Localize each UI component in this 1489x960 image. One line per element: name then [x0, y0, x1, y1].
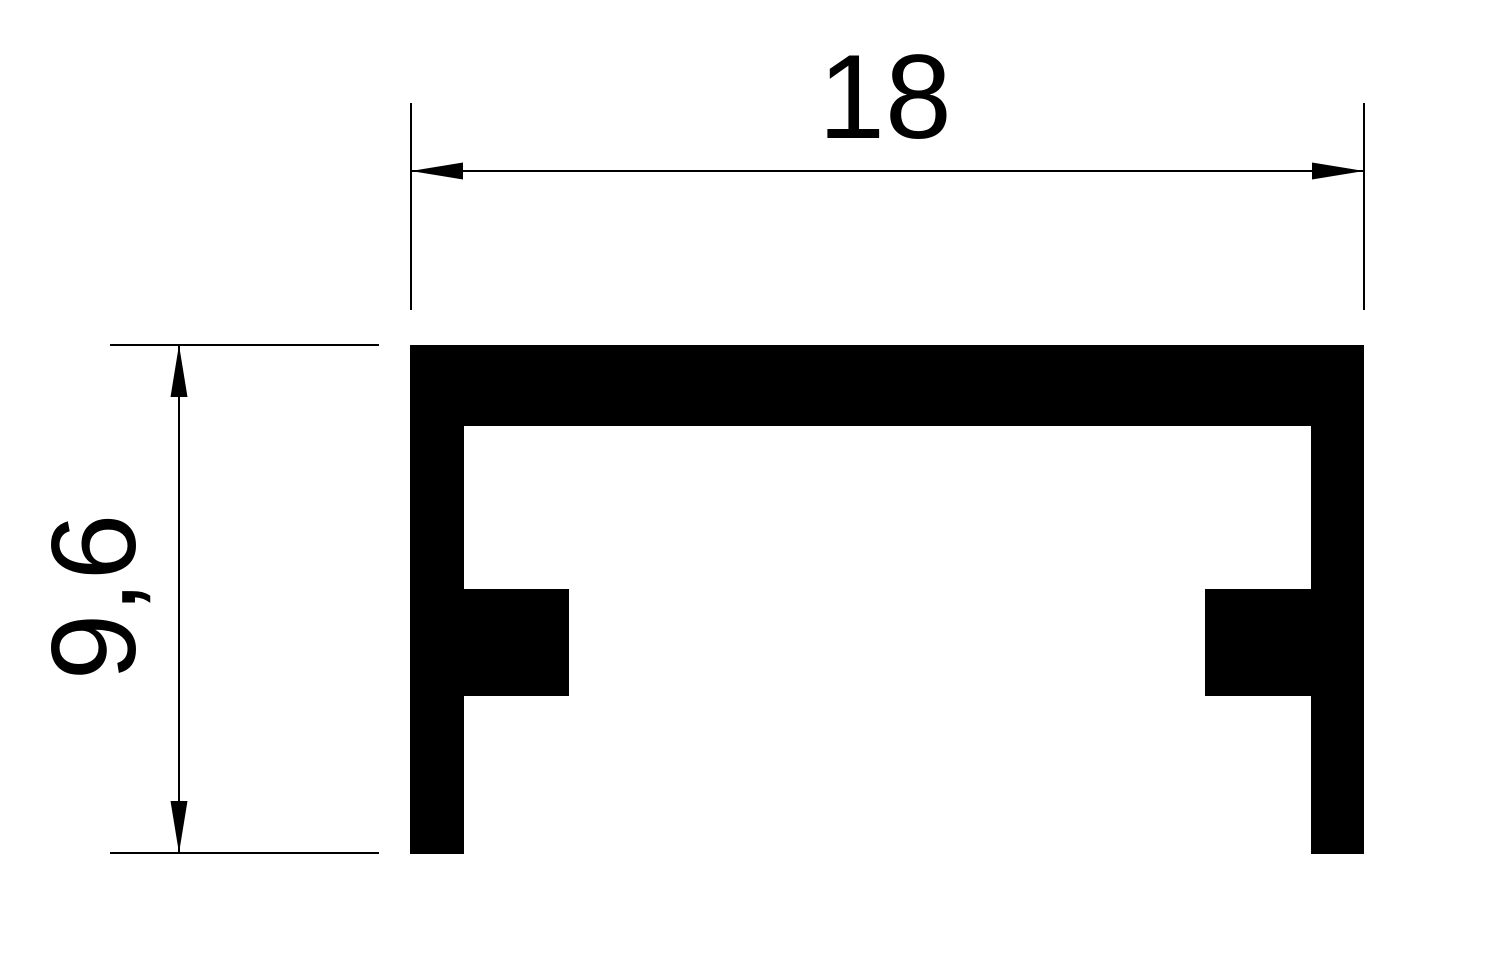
width-arrow-right-icon	[1312, 163, 1364, 180]
height-dimension-label: 9,6	[27, 514, 161, 681]
width-dimension-label: 18	[818, 30, 951, 164]
u-channel-profile-shape	[410, 345, 1364, 854]
width-dimension-group: 18	[411, 30, 1364, 310]
height-arrow-down-icon	[171, 801, 188, 853]
height-arrow-up-icon	[171, 345, 188, 397]
height-dimension-group: 9,6	[27, 345, 379, 853]
width-arrow-left-icon	[411, 163, 463, 180]
technical-drawing-canvas: 18 9,6	[0, 0, 1489, 960]
profile-drawing-svg: 18 9,6	[0, 0, 1489, 960]
